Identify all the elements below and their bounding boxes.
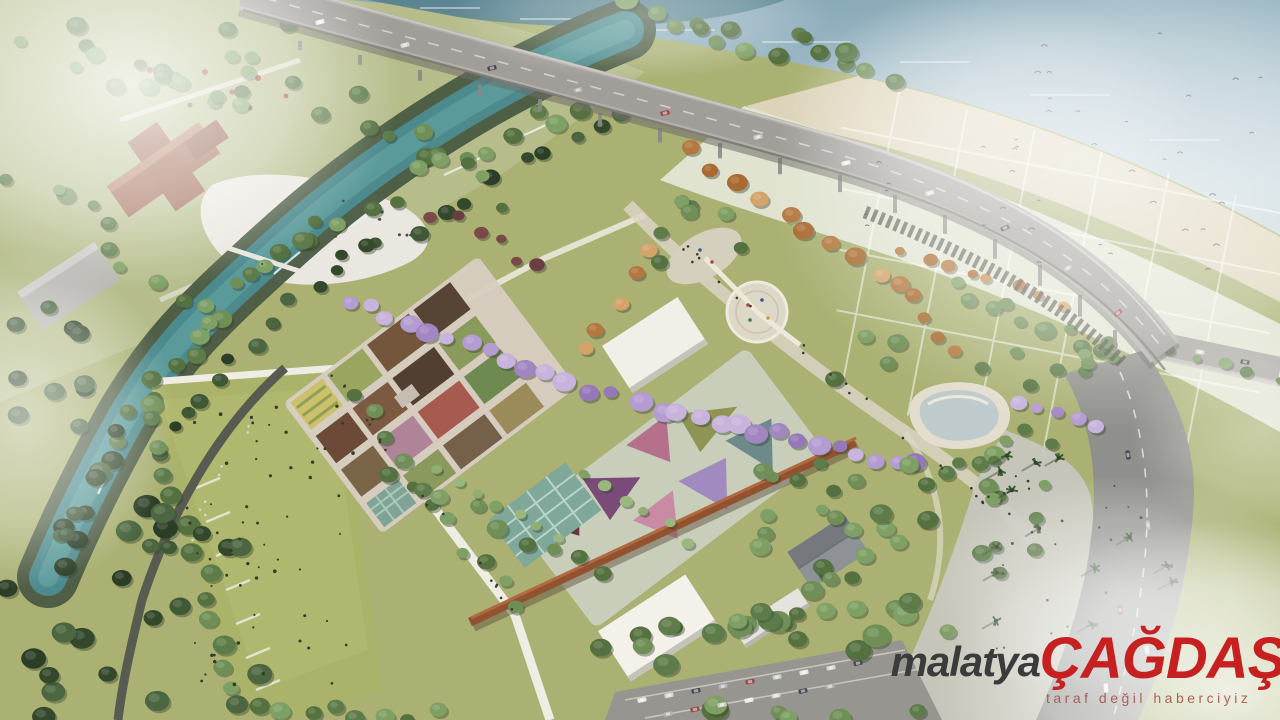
- watermark-tagline: taraf değil haberciyiz: [1046, 690, 1251, 706]
- aerial-render-image: malatya ÇAĞDAŞ taraf değil haberciyiz: [0, 0, 1280, 720]
- scene-svg: malatya ÇAĞDAŞ taraf değil haberciyiz: [0, 0, 1280, 720]
- watermark-prefix: malatya: [891, 638, 1041, 685]
- watermark-brand: ÇAĞDAŞ: [1040, 626, 1280, 691]
